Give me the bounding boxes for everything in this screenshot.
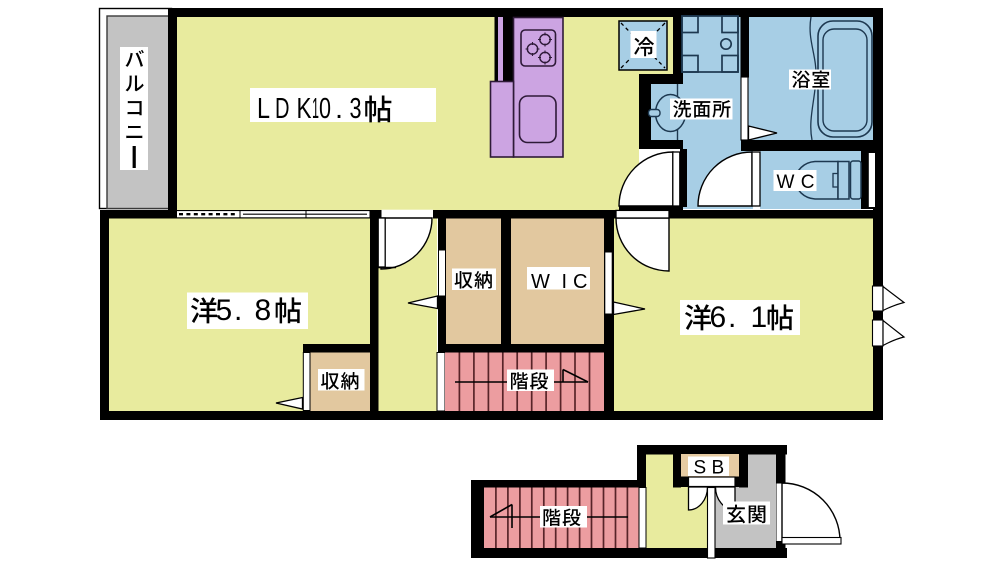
svg-text:S: S [694,458,707,479]
svg-text:K: K [297,93,313,125]
svg-text:D: D [275,93,290,125]
svg-text:.: . [335,93,343,125]
svg-text:3: 3 [350,93,362,125]
svg-text:B: B [712,458,725,479]
svg-text:0: 0 [319,93,331,125]
svg-text:W: W [531,271,550,293]
svg-text:L: L [257,93,270,125]
svg-text:1: 1 [312,93,319,125]
svg-text:I: I [562,271,568,293]
svg-text:C: C [573,271,587,293]
